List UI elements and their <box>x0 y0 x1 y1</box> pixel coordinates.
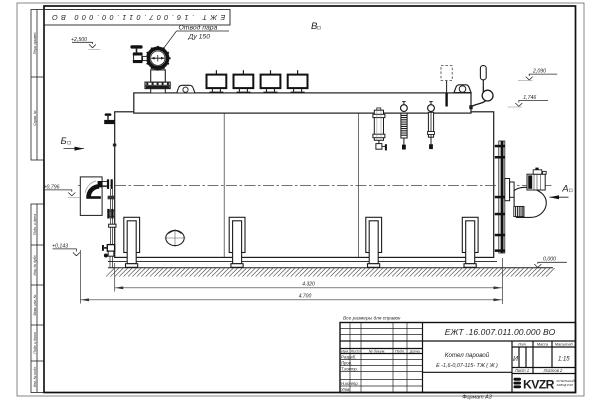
svg-text:И: И <box>513 356 519 363</box>
svg-text:В: В <box>311 21 318 32</box>
svg-text:Разраб.: Разраб. <box>341 355 356 360</box>
svg-text:Подп.: Подп. <box>395 350 405 354</box>
svg-text:Взам. инв. №: Взам. инв. № <box>33 294 37 315</box>
svg-text:Ду 150: Ду 150 <box>188 34 211 41</box>
svg-text:Утв.: Утв. <box>341 387 351 392</box>
svg-text:Инв. № дубл.: Инв. № дубл. <box>33 255 37 276</box>
svg-text:Формат А3: Формат А3 <box>462 395 492 400</box>
svg-text:Листов 2: Листов 2 <box>543 368 563 373</box>
svg-text:1:15: 1:15 <box>558 357 570 363</box>
svg-text:Лист: Лист <box>350 350 361 354</box>
svg-text:Подп. и дата: Подп. и дата <box>33 332 37 353</box>
svg-text:Отвод пара: Отвод пара <box>179 24 218 32</box>
svg-text:2,090: 2,090 <box>532 69 546 75</box>
svg-text:А: А <box>561 183 568 194</box>
svg-text:Справ. №: Справ. № <box>33 110 37 126</box>
svg-text:4.320: 4.320 <box>302 282 315 288</box>
svg-text:Лит.: Лит. <box>517 342 527 346</box>
svg-text:Е -1,6-0,07-115- ТЖ ( Ж ): Е -1,6-0,07-115- ТЖ ( Ж ) <box>436 363 498 369</box>
svg-text:Масштаб: Масштаб <box>555 342 574 346</box>
svg-text:ЗАВОД РЭП: ЗАВОД РЭП <box>557 383 574 387</box>
svg-text:Пров.: Пров. <box>341 360 352 365</box>
svg-text:Инв. № подл.: Инв. № подл. <box>33 366 37 387</box>
svg-text:Т.контр.: Т.контр. <box>341 366 358 371</box>
svg-text:Масса: Масса <box>537 342 548 346</box>
svg-text:KVZR: KVZR <box>523 378 555 392</box>
svg-text:Изм.: Изм. <box>341 350 349 354</box>
svg-text:КОТЕЛЬНЫЙ: КОТЕЛЬНЫЙ <box>557 379 576 383</box>
svg-text:Б: Б <box>61 136 67 147</box>
svg-text:0,000: 0,000 <box>543 257 556 263</box>
svg-text:Н.контр.: Н.контр. <box>341 381 359 386</box>
svg-text:ЕЖТ .16.007.011.00.000 ВО: ЕЖТ .16.007.011.00.000 ВО <box>445 327 556 337</box>
svg-text:4.700: 4.700 <box>299 294 312 300</box>
svg-text:Лист 1: Лист 1 <box>514 368 529 373</box>
svg-text:Котел паровой: Котел паровой <box>445 352 490 359</box>
svg-text:Дата: Дата <box>409 350 420 354</box>
svg-text:ЕЖТ .16.007.011.00.000 ВО: ЕЖТ .16.007.011.00.000 ВО <box>49 13 225 22</box>
svg-text:Подп. и дата: Подп. и дата <box>33 214 37 235</box>
svg-text:Перв. примен.: Перв. примен. <box>33 32 37 55</box>
svg-text:№ докум.: № докум. <box>369 350 386 354</box>
svg-text:Все размеры для справок: Все размеры для справок <box>343 316 401 322</box>
